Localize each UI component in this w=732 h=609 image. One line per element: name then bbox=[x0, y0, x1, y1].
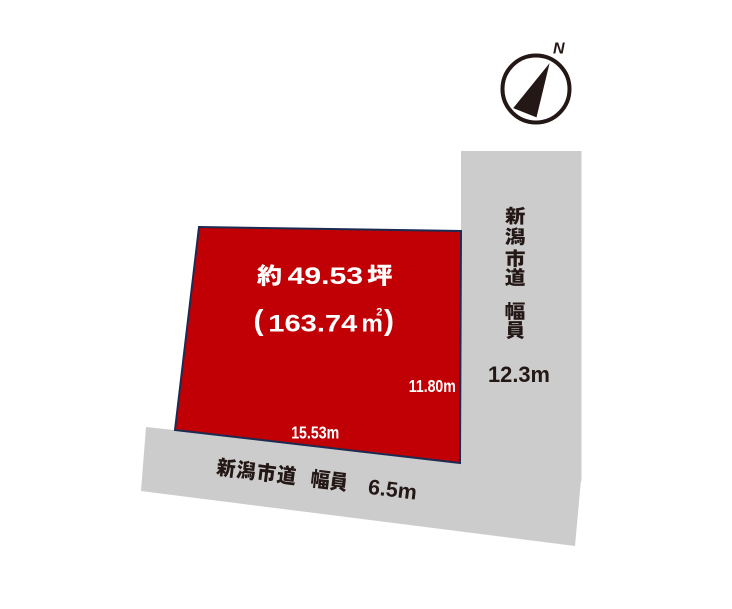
svg-text:15.53m: 15.53m bbox=[291, 423, 339, 443]
svg-text:163.74: 163.74 bbox=[268, 310, 357, 337]
svg-text:(: ( bbox=[254, 305, 264, 337]
svg-text:): ) bbox=[384, 305, 394, 337]
svg-text:49.53: 49.53 bbox=[288, 263, 364, 290]
svg-text:2: 2 bbox=[376, 307, 382, 319]
svg-text:N: N bbox=[553, 40, 565, 57]
svg-text:12.3m: 12.3m bbox=[488, 362, 550, 387]
svg-text:11.80m: 11.80m bbox=[409, 376, 456, 396]
